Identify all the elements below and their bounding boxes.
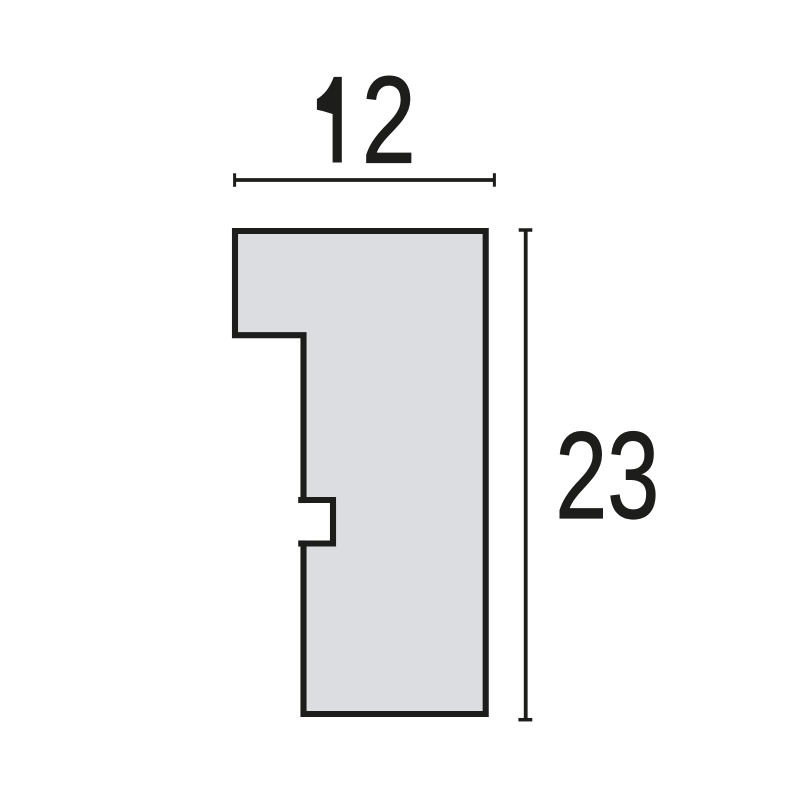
svg-text:23: 23 (555, 408, 659, 545)
svg-text:2: 2 (362, 53, 416, 189)
